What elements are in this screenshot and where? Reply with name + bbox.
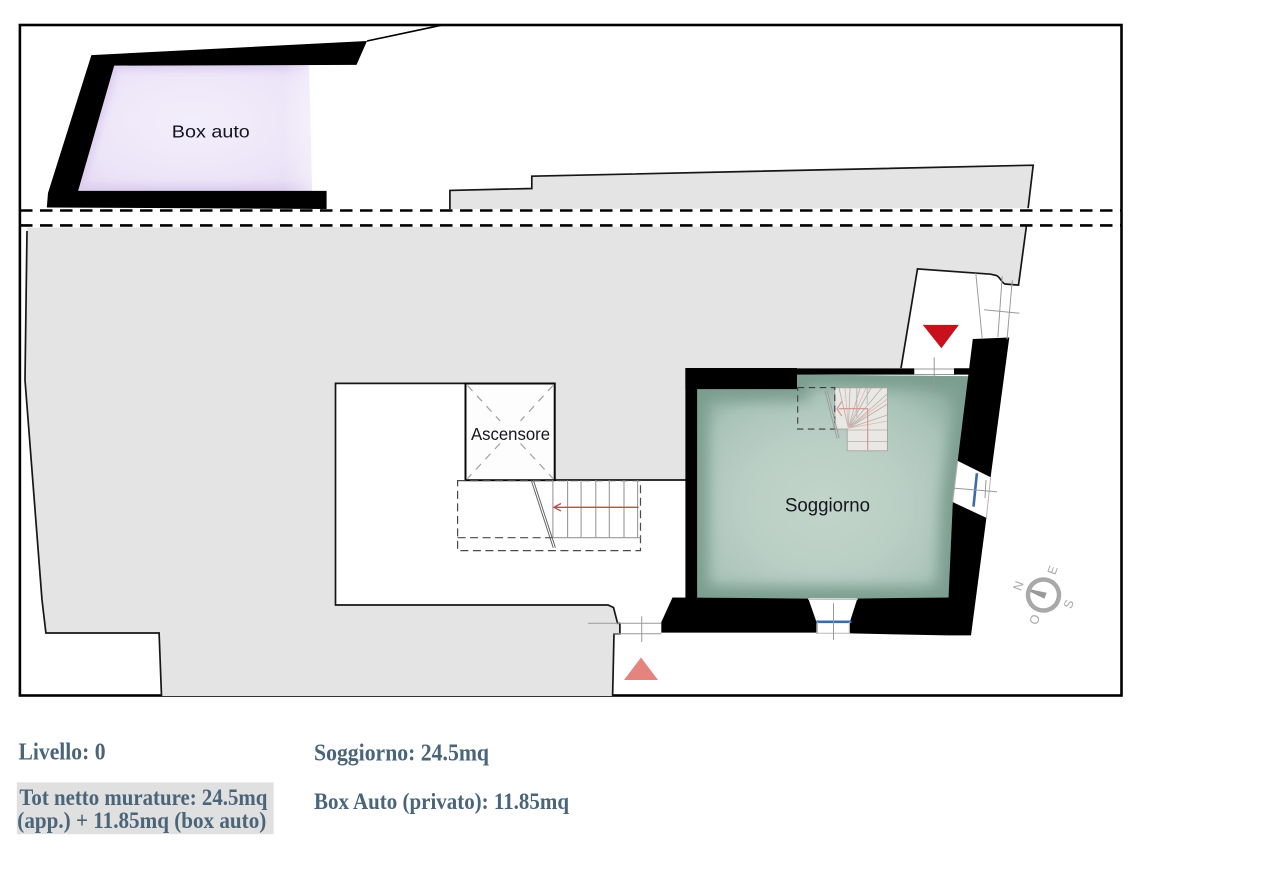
svg-text:Box Auto (privato): 11.85mq: Box Auto (privato): 11.85mq bbox=[314, 789, 569, 814]
svg-text:Ascensore: Ascensore bbox=[471, 424, 550, 444]
svg-text:Soggiorno: Soggiorno bbox=[785, 495, 870, 517]
svg-text:(app.) + 11.85mq (box auto): (app.) + 11.85mq (box auto) bbox=[17, 808, 266, 833]
svg-text:Livello: 0: Livello: 0 bbox=[19, 740, 106, 766]
svg-text:Box auto: Box auto bbox=[172, 122, 250, 142]
svg-text:Tot netto murature: 24.5mq: Tot netto murature: 24.5mq bbox=[19, 785, 267, 810]
svg-text:Soggiorno: 24.5mq: Soggiorno: 24.5mq bbox=[314, 741, 490, 767]
